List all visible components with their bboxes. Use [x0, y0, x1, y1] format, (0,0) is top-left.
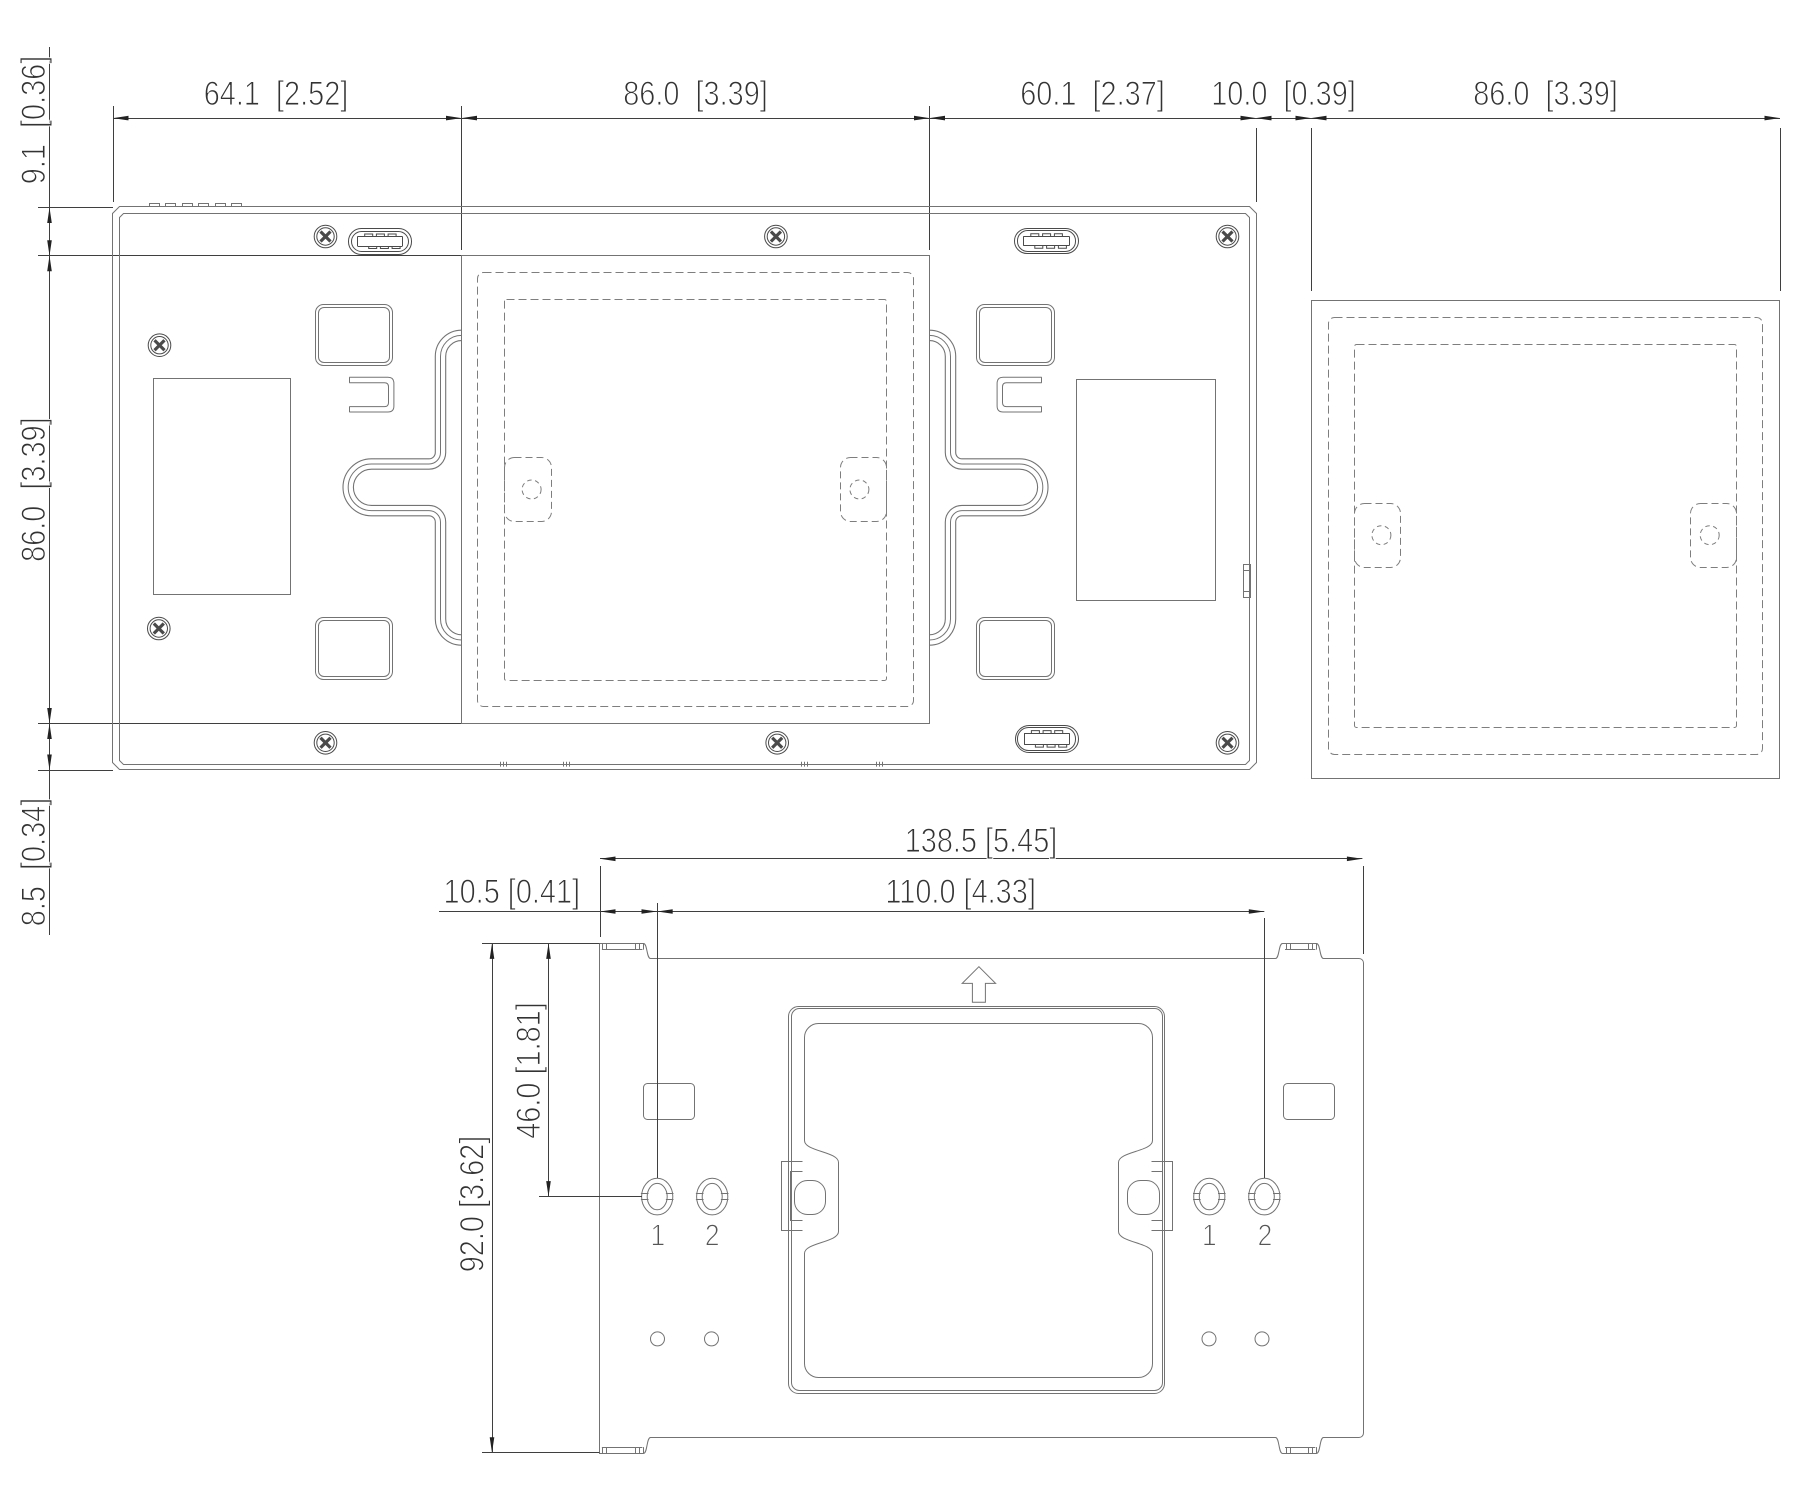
svg-text:110.0 [4.33]: 110.0 [4.33]	[885, 872, 1035, 911]
svg-text:8.5 [0.34]: 8.5 [0.34]	[14, 798, 53, 927]
svg-text:10.5 [0.41]: 10.5 [0.41]	[444, 872, 581, 911]
svg-text:2: 2	[705, 1219, 720, 1253]
svg-text:86.0 [3.39]: 86.0 [3.39]	[623, 74, 768, 113]
svg-text:92.0 [3.62]: 92.0 [3.62]	[452, 1136, 491, 1273]
svg-text:86.0 [3.39]: 86.0 [3.39]	[14, 417, 53, 562]
svg-text:9.1 [0.36]: 9.1 [0.36]	[14, 56, 53, 185]
svg-text:1: 1	[650, 1219, 665, 1253]
svg-text:1: 1	[1202, 1219, 1217, 1253]
svg-text:86.0 [3.39]: 86.0 [3.39]	[1473, 74, 1618, 113]
svg-text:46.0 [1.81]: 46.0 [1.81]	[509, 1002, 548, 1139]
svg-text:64.1 [2.52]: 64.1 [2.52]	[204, 74, 349, 113]
svg-text:10.0 [0.39]: 10.0 [0.39]	[1211, 74, 1356, 113]
svg-text:2: 2	[1258, 1219, 1273, 1253]
svg-text:60.1 [2.37]: 60.1 [2.37]	[1020, 74, 1165, 113]
svg-text:138.5 [5.45]: 138.5 [5.45]	[905, 821, 1058, 860]
